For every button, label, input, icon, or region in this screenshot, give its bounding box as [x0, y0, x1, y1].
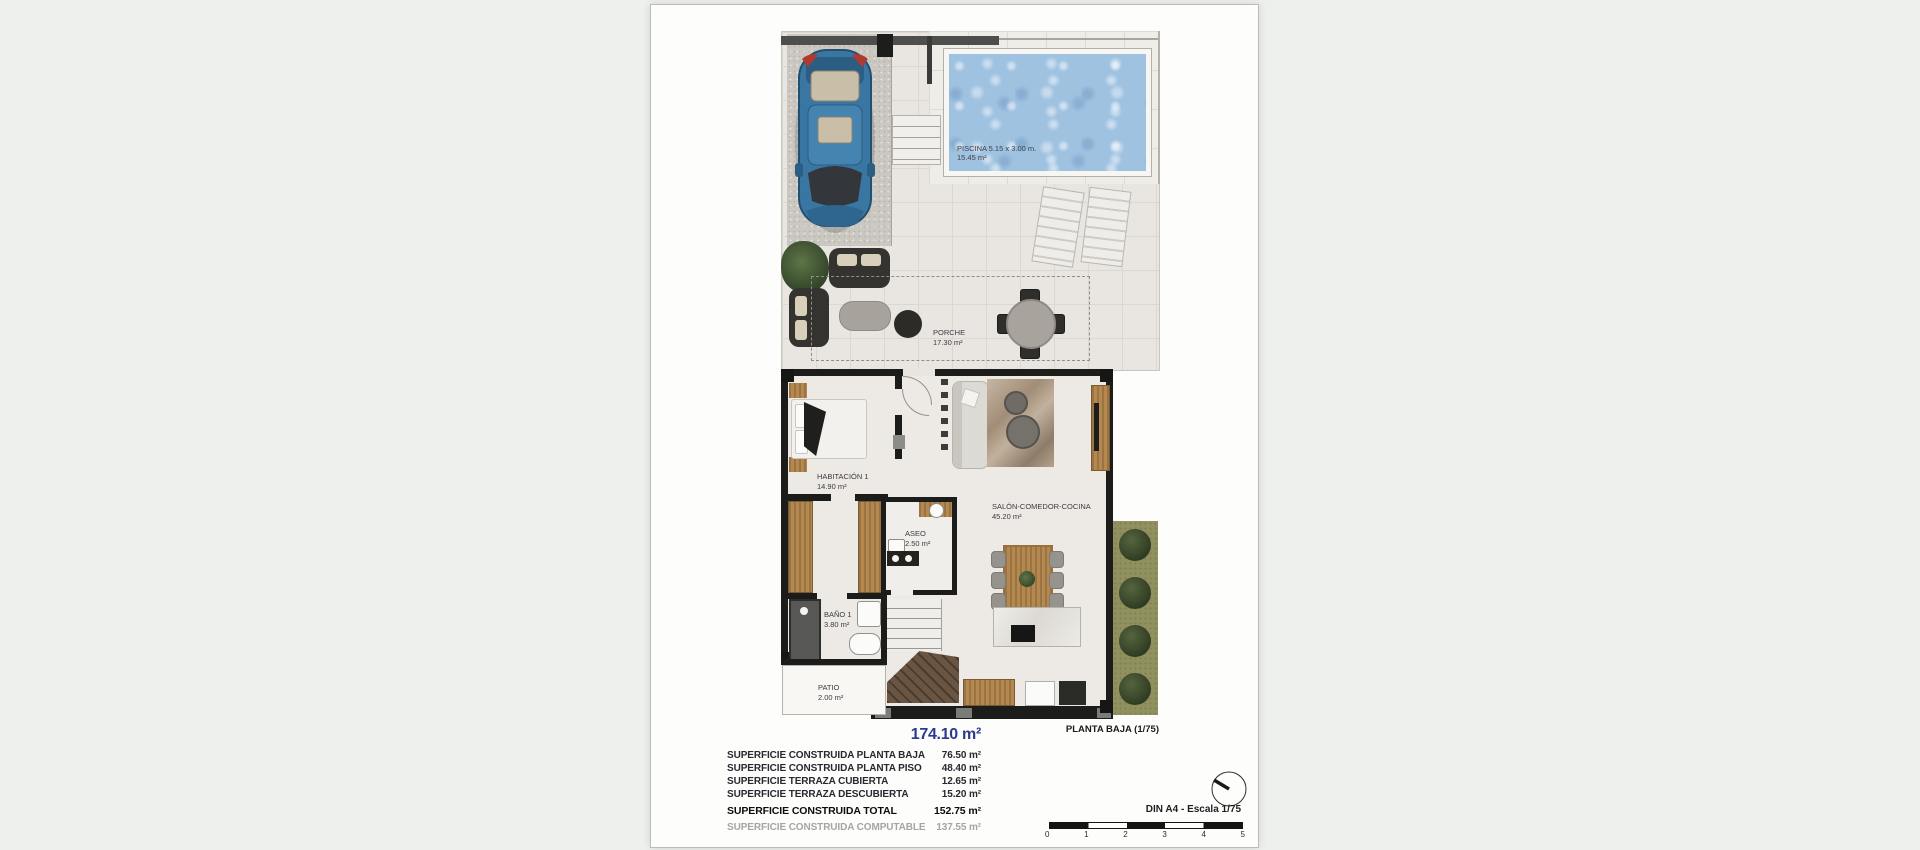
row-label: SUPERFICIE TERRAZA DESCUBIERTA	[727, 788, 908, 801]
tick: 2	[1123, 830, 1127, 839]
sofa-cushion	[795, 320, 807, 340]
sofa-cushion	[795, 296, 807, 316]
cooktop	[1011, 625, 1035, 642]
row-label: SUPERFICIE CONSTRUIDA COMPUTABLE	[727, 821, 925, 834]
dining-table	[1003, 545, 1053, 613]
partition-wall	[895, 369, 902, 389]
car-top-view	[794, 45, 876, 233]
round-side-table	[1004, 391, 1028, 415]
sofa-back	[953, 382, 962, 468]
nightstand	[789, 457, 807, 472]
partition-wall	[781, 494, 831, 501]
room-label-porche: PORCHE 17.30 m²	[933, 328, 965, 348]
stairs-upper-flight	[887, 599, 942, 651]
row-value: 15.20 m²	[942, 788, 981, 801]
gate-post	[877, 34, 893, 57]
scale-bar	[1049, 822, 1243, 829]
hedge-bush	[1119, 529, 1151, 561]
wall-stub	[927, 36, 932, 84]
row-label: SUPERFICIE CONSTRUIDA TOTAL	[727, 805, 897, 818]
plan-caption: PLANTA BAJA (1/75)	[1043, 724, 1159, 735]
room-label-aseo: ASEO 2.50 m²	[905, 529, 930, 549]
wall-pillar	[956, 708, 972, 718]
room-area: 17.30 m²	[933, 338, 965, 348]
dining-chair	[1049, 551, 1064, 568]
row-value: 152.75 m²	[934, 805, 981, 818]
room-name: BAÑO 1	[824, 610, 852, 620]
room-name: HABITACIÓN 1	[817, 472, 869, 482]
fridge	[1059, 681, 1086, 705]
aseo-door-opening	[891, 590, 913, 596]
plan-sheet: PISCINA 5.15 x 3.00 m. 15.45 m²	[650, 4, 1259, 848]
scale-ticks: 0 1 2 3 4 5	[1045, 830, 1245, 839]
room-label-patio: PATIO 2.00 m²	[818, 683, 843, 703]
corner-pillar	[1100, 700, 1113, 713]
row-label: SUPERFICIE CONSTRUIDA PLANTA BAJA	[727, 749, 925, 762]
room-name: SALÓN-COMEDOR-COCINA	[992, 502, 1091, 512]
room-area: 3.80 m²	[824, 620, 852, 630]
wall-bottom	[871, 706, 1113, 719]
tick: 5	[1241, 830, 1245, 839]
table-row: SUPERFICIE CONSTRUIDA PLANTA PISO 48.40 …	[727, 762, 981, 775]
room-name: PORCHE	[933, 328, 965, 338]
sofa-pillow	[960, 388, 980, 408]
swimming-pool: PISCINA 5.15 x 3.00 m. 15.45 m²	[944, 49, 1151, 176]
dining-chair	[1049, 572, 1064, 589]
living-sofa	[952, 381, 989, 469]
room-label-piscina: PISCINA 5.15 x 3.00 m. 15.45 m²	[957, 144, 1036, 164]
outdoor-dining-set	[997, 289, 1061, 355]
shower-head	[800, 607, 808, 615]
room-area: 2.50 m²	[905, 539, 930, 549]
kitchen-unit	[1025, 681, 1055, 706]
outdoor-table	[1006, 299, 1056, 349]
tick: 4	[1201, 830, 1205, 839]
tick: 0	[1045, 830, 1049, 839]
room-label-salon: SALÓN-COMEDOR-COCINA 45.20 m²	[992, 502, 1091, 522]
shelving-strip	[941, 379, 948, 451]
boundary-line	[999, 38, 1158, 40]
nightstand	[789, 383, 807, 398]
wall-top	[781, 369, 1113, 376]
room-area: 2.00 m²	[818, 693, 843, 703]
column	[893, 435, 905, 449]
row-value: 12.65 m²	[942, 775, 981, 788]
row-label: SUPERFICIE CONSTRUIDA PLANTA PISO	[727, 762, 922, 775]
counter-dot	[905, 555, 912, 562]
room-area: 15.45 m²	[957, 153, 1036, 163]
scale-label: DIN A4 - Escala 1/75	[1091, 804, 1241, 815]
bed	[791, 399, 867, 459]
table-row: SUPERFICIE CONSTRUIDA PLANTA BAJA 76.50 …	[727, 749, 981, 762]
table-row-computable: SUPERFICIE CONSTRUIDA COMPUTABLE 137.55 …	[727, 821, 981, 834]
shower	[789, 599, 821, 663]
surface-table: SUPERFICIE CONSTRUIDA PLANTA BAJA 76.50 …	[727, 749, 981, 834]
bath-sink	[857, 601, 881, 627]
utility-counter	[887, 551, 919, 566]
table-row: SUPERFICIE TERRAZA DESCUBIERTA 15.20 m²	[727, 788, 981, 801]
kitchen-island	[993, 607, 1081, 647]
corner-pillar	[1100, 369, 1113, 382]
sofa-cushion	[837, 254, 857, 266]
wardrobe	[858, 501, 883, 593]
table-row-total: SUPERFICIE CONSTRUIDA TOTAL 152.75 m²	[727, 805, 981, 818]
exterior-stairs	[892, 115, 941, 165]
row-value: 137.55 m²	[936, 821, 981, 834]
sofa-cushion	[861, 254, 881, 266]
entrance-opening	[903, 369, 935, 376]
dining-chair	[991, 551, 1006, 568]
room-name: PISCINA 5.15 x 3.00 m.	[957, 144, 1036, 154]
row-value: 48.40 m²	[942, 762, 981, 775]
tick: 3	[1162, 830, 1166, 839]
hedge-bush	[1119, 577, 1151, 609]
wall-left	[781, 369, 788, 665]
tick: 1	[1084, 830, 1088, 839]
room-area: 14.90 m²	[817, 482, 869, 492]
wardrobe	[788, 501, 813, 593]
round-side-table	[1006, 415, 1040, 449]
room-area: 45.20 m²	[992, 512, 1091, 522]
shower-tray	[849, 633, 881, 655]
hedge-bush	[1119, 673, 1151, 705]
hedge-bush	[1119, 625, 1151, 657]
bed-throw	[804, 402, 826, 456]
room-name: PATIO	[818, 683, 843, 693]
table-plant	[1019, 571, 1035, 587]
tv	[1094, 403, 1099, 451]
dining-chair	[991, 572, 1006, 589]
room-label-habitacion: HABITACIÓN 1 14.90 m²	[817, 472, 869, 492]
aseo-sink	[929, 503, 944, 518]
kitchen-cabinets	[963, 679, 1015, 706]
row-value: 76.50 m²	[942, 749, 981, 762]
room-label-bano: BAÑO 1 3.80 m²	[824, 610, 852, 630]
table-row: SUPERFICIE TERRAZA CUBIERTA 12.65 m²	[727, 775, 981, 788]
row-label: SUPERFICIE TERRAZA CUBIERTA	[727, 775, 888, 788]
room-name: ASEO	[905, 529, 930, 539]
total-area-title: 174.10 m²	[891, 726, 981, 744]
corner-pillar	[781, 369, 794, 382]
counter-dot	[892, 555, 899, 562]
side-garden	[1113, 521, 1158, 715]
